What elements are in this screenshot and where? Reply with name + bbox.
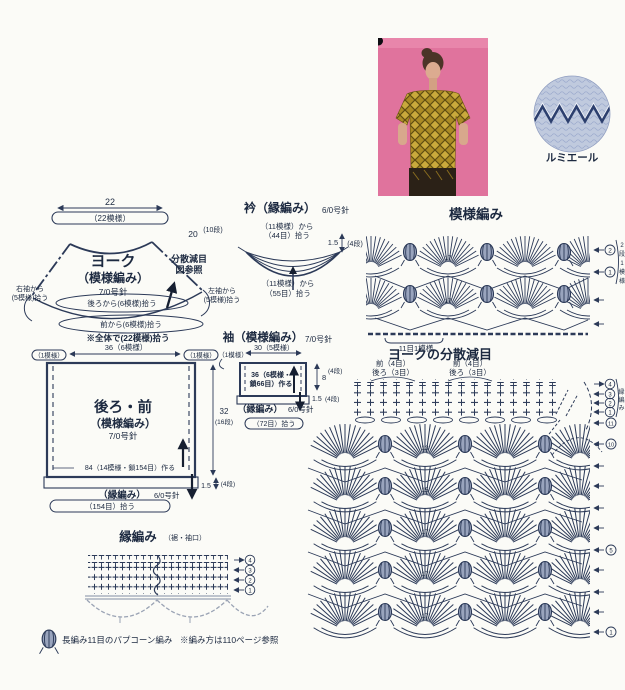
- yoke-subtitle: （模様編み）: [77, 270, 149, 285]
- swatch-label: ルミエール: [546, 152, 599, 164]
- decrease-edge-label-3: み: [618, 405, 624, 412]
- decrease-edge-row2: 2: [608, 402, 612, 408]
- decrease-fan-count-3: 17: [421, 529, 429, 536]
- sleeve-body-rows: (4段): [328, 366, 342, 375]
- sleeve-edge-hook: 6/0号針: [288, 404, 314, 414]
- legend-reference-text: ※編み方は110ページ参照: [180, 635, 279, 645]
- yoke-left-pick2: (5模様)拾う: [12, 293, 49, 302]
- sleeve-hook: 7/0号針: [305, 334, 332, 344]
- model-photo: [374, 37, 488, 197]
- yoke-dec-note2: 図参照: [175, 264, 202, 275]
- body-cuff-height: 1.5: [201, 483, 211, 490]
- decrease-front-label-1: 前（4目）: [376, 358, 410, 368]
- collar-schematic: 衿（縁編み） 6/0号針 （11模様）から （44目）拾う 1.5 (4段) （…: [238, 200, 363, 298]
- yoke-title: ヨーク: [90, 253, 135, 270]
- decrease-back-label-1: 後ろ（3目）: [372, 367, 414, 377]
- yoke-dec-note1: 分散減目: [171, 253, 207, 264]
- collar-title: 衿（縁編み）: [244, 200, 316, 215]
- pattern-row1-num: 1: [608, 270, 612, 277]
- popcorn-stitch-icon: [40, 630, 59, 654]
- decrease-edge-row4: 4: [608, 383, 612, 389]
- decrease-edge-label-1: 縁: [618, 388, 624, 396]
- yoke-total-note: ※全体で(22模様)拾う: [86, 333, 169, 343]
- pattern-repeat-3: 1: [620, 261, 624, 267]
- legend-popcorn-text: 長編み11目のパプコーン編み: [62, 635, 173, 645]
- collar-pick-bottom1: （11模様）から: [262, 278, 315, 288]
- sleeve-body-height: 8: [322, 373, 326, 382]
- decrease-row10: 10: [608, 443, 614, 449]
- yoke-rows: 20: [188, 229, 198, 239]
- body-one-right: （1模様）: [186, 351, 216, 360]
- body-height-rows: (16段): [215, 417, 233, 426]
- body-one-left: （1模様）: [34, 351, 64, 360]
- edging-row1: 1: [248, 589, 252, 595]
- sleeve-cast2: 鎖66目）作る: [250, 379, 293, 388]
- decrease-fan-count-2: 15: [421, 487, 429, 494]
- sleeve-top-width: 30（5模様）: [254, 343, 294, 352]
- edging-row3: 3: [248, 569, 252, 575]
- collar-height: 1.5: [328, 238, 338, 247]
- pattern-repeat-2: 段: [619, 250, 625, 258]
- yoke-hook: 7/0号針: [99, 287, 128, 297]
- body-edge-label: （縁編み）: [98, 489, 146, 501]
- pattern-fan-count-2: 17: [444, 298, 452, 305]
- body-title: 後ろ・前: [94, 398, 152, 416]
- pattern-repeat-1: 2: [620, 243, 624, 249]
- decrease-row1: 1: [609, 631, 613, 637]
- decrease-row11: 11: [608, 422, 614, 428]
- sleeve-title: 袖（模様編み）: [223, 330, 304, 344]
- pattern-repeat-5: 様: [619, 277, 625, 285]
- decrease-fan-count-1: 13: [421, 445, 429, 452]
- page-art: ルミエール 22 （22模様） ヨーク （模様編み） 7/0号針 20 (10段…: [0, 0, 625, 690]
- sleeve-cast1: 36（6模様・: [251, 370, 291, 379]
- yoke-decrease-chart: ヨークの分散減目 前（4目） 後ろ（3目） 前（4目） 後ろ（3目） 1: [308, 347, 625, 638]
- yoke-right-pick2: (5模様)拾う: [204, 295, 241, 304]
- pattern-row2-num: 2: [608, 248, 612, 255]
- body-pick: （154目）拾う: [85, 501, 135, 511]
- decrease-edge-row1: 1: [608, 411, 612, 417]
- sleeve-schematic: 袖（模様編み） 7/0号針 （1模様） 30（5模様） 36（6模様・ 鎖66目…: [218, 330, 342, 429]
- decrease-back-label-2: 後ろ（3目）: [449, 367, 491, 377]
- yoke-rows-paren: (10段): [203, 225, 222, 234]
- decrease-front-label-2: 前（4目）: [453, 358, 487, 368]
- yoke-schematic: 22 （22模様） ヨーク （模様編み） 7/0号針 20 (10段) 分散減目…: [12, 197, 241, 343]
- collar-pick-top1: （11模様）から: [261, 221, 314, 231]
- body-cuff-rows: (4段): [221, 479, 235, 488]
- body-edge-hook: 6/0号針: [154, 490, 180, 500]
- body-height: 32: [220, 407, 229, 416]
- collar-pick-bottom2: （55目）拾う: [265, 288, 311, 298]
- decrease-edge-row3: 3: [608, 393, 612, 399]
- edging-row4: 4: [248, 559, 252, 565]
- pattern-fan-count-1: 17: [444, 255, 452, 262]
- edging-chart-title: 縁編み: [119, 529, 157, 544]
- yoke-left-pick1: 右袖から: [16, 284, 44, 293]
- pattern-stitch-chart: 模様編み 17 17 2 1 2 段 1 模 様 11目1模様: [340, 206, 625, 353]
- body-cast: 84（14模様・鎖154目）作る: [85, 463, 175, 472]
- decrease-edge-label-2: 編: [618, 396, 624, 404]
- yoke-front-pick: 前から(6模様)拾う: [100, 319, 162, 329]
- pattern-page: ルミエール 22 （22模様） ヨーク （模様編み） 7/0号針 20 (10段…: [0, 0, 625, 690]
- sleeve-edge-label: （縁編み）: [237, 403, 282, 414]
- collar-hook: 6/0号針: [322, 205, 349, 215]
- sleeve-cuff-height: 1.5: [312, 396, 322, 403]
- body-schematic: （1模様） （1模様） 36（6模様） 後ろ・前 （模様編み） 7/0号針 32…: [32, 342, 235, 512]
- yoke-back-pick: 後ろから(6模様)拾う: [87, 298, 156, 308]
- sleeve-one-pattern: （1模様）: [218, 350, 248, 359]
- collar-height-rows: (4段): [347, 239, 363, 248]
- body-subtitle: （模様編み）: [90, 416, 156, 430]
- yoke-top-width: 22: [105, 197, 115, 207]
- stitch-legend: 長編み11目のパプコーン編み ※編み方は110ページ参照: [40, 630, 279, 654]
- pattern-repeat-4: 模: [619, 268, 625, 276]
- edging-chart: 縁編み （裾・袖口） 4 3 2 1: [85, 529, 268, 623]
- sleeve-pick: （72目）拾う: [253, 419, 296, 428]
- yarn-swatch: [534, 76, 611, 152]
- edging-chart-subtitle: （裾・袖口）: [164, 533, 206, 542]
- yoke-right-pick1: 左袖から: [208, 286, 236, 295]
- body-hook: 7/0号針: [109, 431, 138, 441]
- body-top-width: 36（6模様）: [105, 342, 148, 352]
- edging-row2: 2: [248, 579, 252, 585]
- decrease-fan-count-5: 17: [421, 613, 429, 620]
- yoke-top-pattern: （22模様）: [90, 213, 131, 223]
- pattern-chart-title: 模様編み: [449, 206, 503, 222]
- sleeve-cuff-rows: (4段): [325, 394, 339, 403]
- decrease-row5: 5: [609, 549, 613, 555]
- decrease-fan-count-4: 17: [421, 571, 429, 578]
- collar-pick-top2: （44目）拾う: [264, 230, 310, 240]
